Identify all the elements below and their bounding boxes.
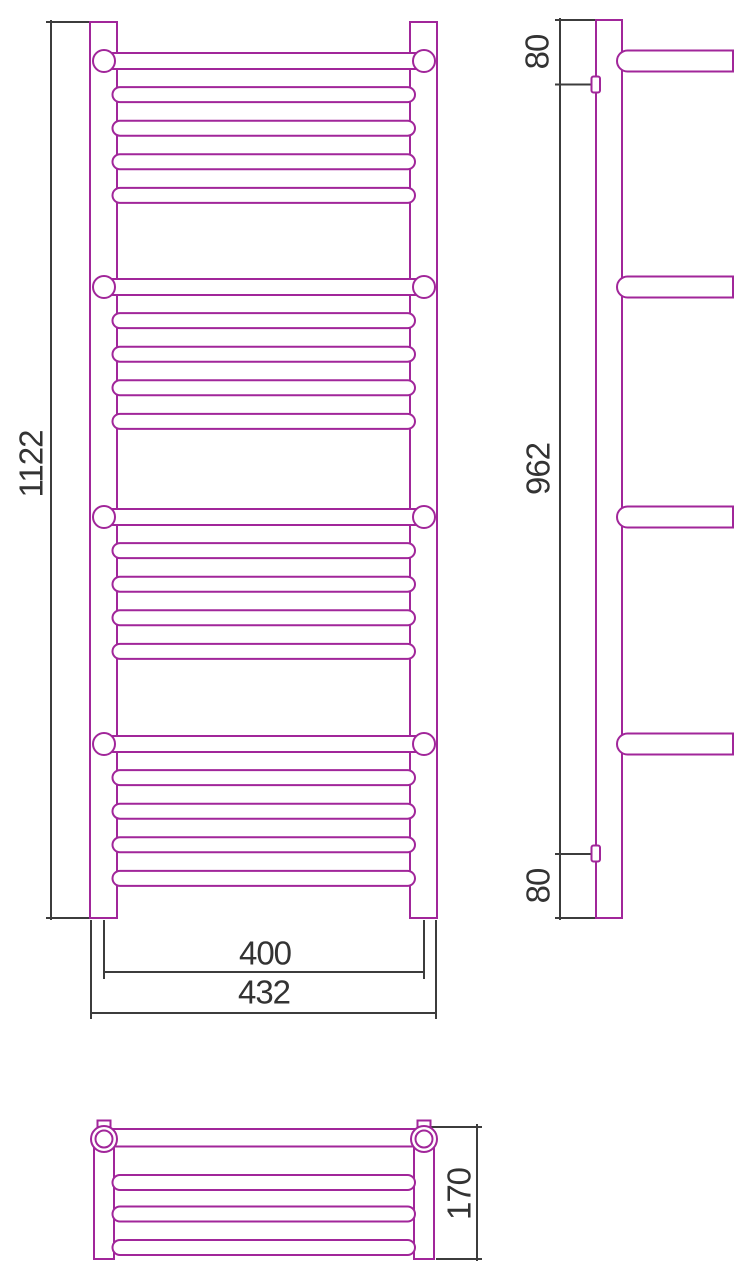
front-rung-group	[93, 733, 435, 886]
dimension-value-depth: 170	[441, 1167, 478, 1220]
dimension-value-rail-width: 400	[239, 935, 292, 972]
collector-joint	[93, 506, 115, 528]
collector-joint	[413, 733, 435, 755]
drawing-canvas: 1122 400 432	[0, 0, 755, 1280]
bottle-rung	[113, 380, 416, 395]
bottle-rung	[113, 610, 416, 625]
front-width-dimensions: 400 432	[91, 920, 436, 1019]
bottle-rung	[113, 188, 416, 203]
bottle-rung	[113, 313, 416, 328]
bottle-rung	[113, 577, 416, 592]
side-rung	[617, 734, 733, 755]
front-rung-group	[93, 276, 435, 429]
collector-joint	[93, 50, 115, 72]
side-rung	[617, 51, 733, 72]
bottle-rung	[113, 121, 416, 136]
plan-stile	[94, 1139, 114, 1259]
bottle-rung	[113, 87, 416, 102]
bottle-rung	[113, 871, 416, 886]
plan-collector-rung	[104, 1129, 424, 1147]
wall-bracket	[592, 77, 601, 93]
side-rung	[617, 507, 733, 528]
collector-rung	[104, 53, 424, 69]
collector-joint	[413, 276, 435, 298]
plan-pipe-inner	[96, 1131, 113, 1148]
side-view: 80 962 80	[519, 18, 734, 920]
collector-rung	[104, 509, 424, 525]
plan-bottle-rung	[113, 1207, 416, 1222]
dimension-value-top-offset: 80	[519, 34, 556, 69]
side-pipe	[596, 20, 622, 918]
wall-bracket	[592, 846, 601, 862]
dimension-value-bracket-span: 962	[520, 443, 557, 495]
plan-pipe-inner	[416, 1131, 433, 1148]
front-height-dimension: 1122	[13, 20, 91, 920]
bottle-rung	[113, 837, 416, 852]
towel-rail-technical-drawing: 1122 400 432	[0, 0, 755, 1280]
front-left-stile	[90, 22, 117, 918]
collector-rung	[104, 279, 424, 295]
bottle-rung	[113, 644, 416, 659]
plan-depth-dimension: 170	[430, 1124, 482, 1261]
bottle-rung	[113, 543, 416, 558]
front-view: 1122 400 432	[13, 20, 438, 1019]
dimension-value-bottom-offset: 80	[520, 868, 557, 903]
bottle-rung	[113, 154, 416, 169]
side-rung	[617, 277, 733, 298]
front-rung-group	[93, 50, 435, 203]
plan-view: 170	[91, 1121, 482, 1262]
bottle-rung	[113, 770, 416, 785]
collector-rung	[104, 736, 424, 752]
front-rung-group	[93, 506, 435, 659]
bottle-rung	[113, 347, 416, 362]
dimension-value-overall-width: 432	[238, 974, 290, 1011]
collector-joint	[413, 50, 435, 72]
bottle-rung	[113, 804, 416, 819]
bottle-rung	[113, 414, 416, 429]
plan-bottle-rung	[113, 1240, 416, 1255]
plan-stile	[414, 1139, 434, 1259]
collector-joint	[93, 276, 115, 298]
dimension-value-height: 1122	[13, 431, 50, 498]
collector-joint	[413, 506, 435, 528]
side-height-dimension: 80 962 80	[519, 18, 598, 920]
plan-bottle-rung	[113, 1175, 416, 1190]
collector-joint	[93, 733, 115, 755]
